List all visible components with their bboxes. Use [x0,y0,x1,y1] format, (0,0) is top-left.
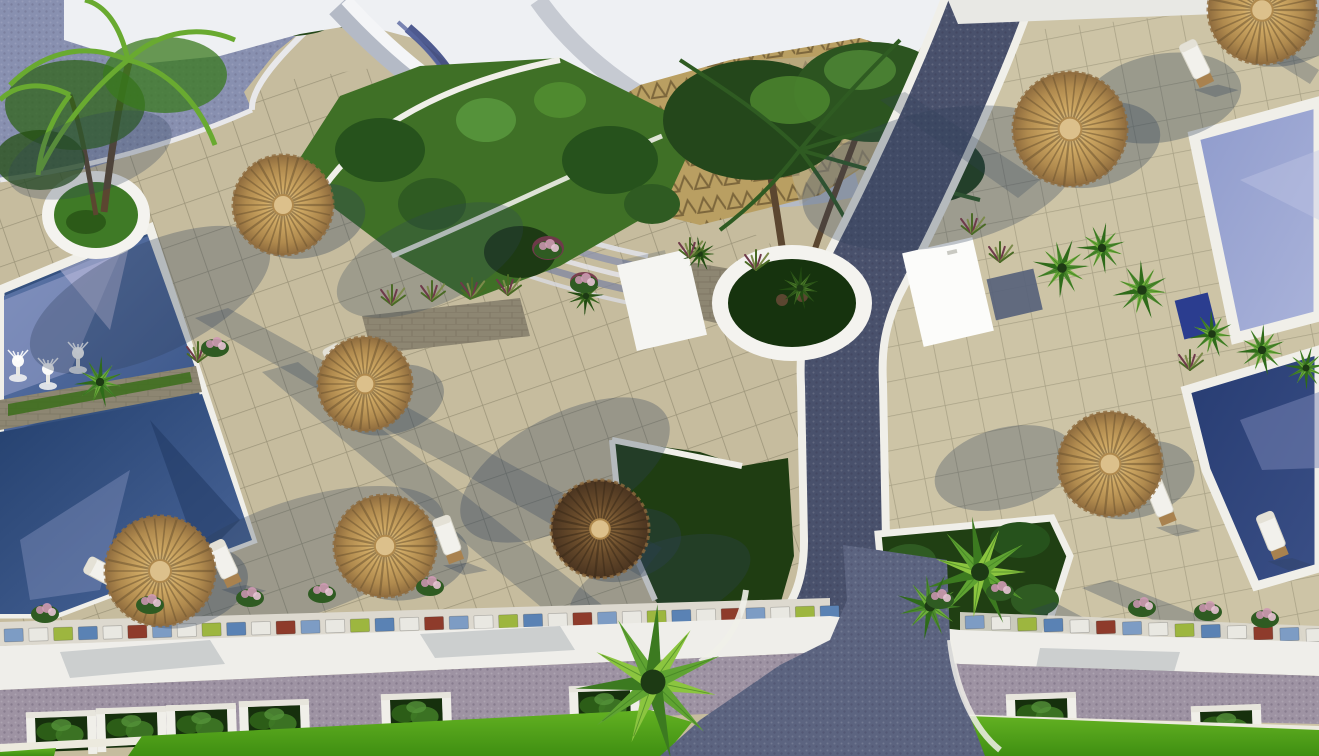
palm-crown [96,378,104,386]
shrub [990,522,1050,558]
mosaic-block [1044,618,1063,632]
mosaic-block [400,617,419,631]
bush-flowers [1145,602,1153,610]
mosaic-block [1227,625,1246,639]
thatch-umbrella-dark [551,480,650,579]
palm-crown [971,563,989,581]
umbrella-cap [1251,0,1273,21]
mosaic-block [227,622,246,636]
umbrella-cap [356,375,375,394]
mosaic-block [128,625,147,639]
mosaic-block [523,614,542,628]
mosaic-block [597,612,616,626]
umbrella-cap [149,560,171,582]
mosaic-block [548,613,567,627]
mosaic-block [1017,617,1036,631]
resort-aerial-scene [0,0,1319,756]
mosaic-block [202,623,221,637]
umbrella-cap [1100,454,1121,475]
bush-flowers [943,594,951,602]
mosaic-block [325,619,344,633]
mosaic-block [474,615,493,629]
bush-flowers [325,588,333,596]
mosaic-block [1149,622,1168,636]
mosaic-block [301,620,320,634]
bush-flowers [1003,586,1011,594]
palm-crown [1302,364,1309,371]
mosaic-block [1201,624,1220,638]
mosaic-block [4,628,23,642]
palm-crown [796,284,803,291]
mosaic-block [573,612,592,626]
mosaic-block [965,615,984,629]
bush-flowers [218,342,226,350]
mosaic-block [29,628,48,642]
bush-flowers [1268,613,1276,621]
render-canvas [0,0,1319,756]
planter-soil [728,259,856,347]
planter-grass-shade [66,210,106,234]
mosaic-block [276,621,295,635]
umbrella-cap [1059,118,1082,141]
mosaic-block [1096,620,1115,634]
palm-crown [641,670,666,695]
mosaic-block [1070,619,1089,633]
palm-crown [1208,330,1216,338]
umbrella-cap [273,195,293,215]
mosaic-block [1254,626,1273,640]
mosaic-block [622,611,641,625]
mosaic-block [499,614,518,628]
trunk-base [776,294,788,306]
mosaic-block [1280,627,1299,641]
mosaic-block [375,618,394,632]
umbrella-cap [375,536,395,556]
mosaic-block [672,610,691,624]
bush-flowers [153,599,161,607]
mosaic-block [251,621,270,635]
mosaic-block [1122,621,1141,635]
palm-crown [1098,244,1106,252]
bush-flowers [1211,606,1219,614]
mosaic-block [1175,623,1194,637]
palm-crown [1057,263,1067,273]
bush-flowers [253,592,261,600]
mosaic-block [103,626,122,640]
palm-crown [583,293,589,299]
mosaic-block [78,626,97,640]
bush-flowers [587,278,595,286]
palm-crown [1258,346,1266,354]
mosaic-block [53,627,72,641]
mosaic-block [1306,628,1319,642]
mosaic-block [350,619,369,633]
bush-flowers [433,581,441,589]
bush-flowers [551,244,559,252]
bush-flowers [48,608,56,616]
planter-wall-white [87,712,97,754]
umbrella-cap [590,519,610,539]
mosaic-block [424,616,443,630]
mosaic-block [449,616,468,630]
palm-crown [1137,285,1147,295]
